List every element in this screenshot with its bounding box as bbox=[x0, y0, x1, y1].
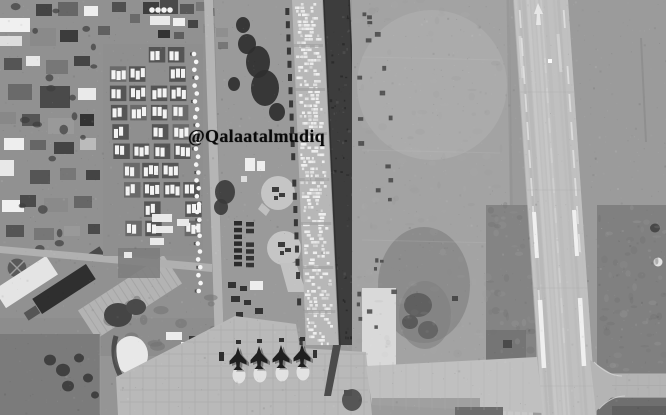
grain bbox=[32, 394, 33, 395]
grain bbox=[466, 381, 467, 382]
grain bbox=[428, 362, 429, 363]
grain bbox=[464, 206, 465, 207]
grain bbox=[654, 27, 656, 29]
grain bbox=[201, 389, 202, 390]
mottle bbox=[426, 330, 429, 333]
grain bbox=[361, 142, 362, 143]
grain bbox=[632, 177, 633, 178]
crate bbox=[307, 105, 310, 108]
grain bbox=[69, 385, 70, 386]
grain bbox=[199, 242, 200, 243]
grain bbox=[273, 292, 274, 293]
tent bbox=[136, 90, 140, 99]
grain bbox=[627, 3, 628, 4]
crate bbox=[307, 297, 309, 300]
grain bbox=[507, 54, 508, 55]
crate bbox=[313, 269, 317, 272]
grain bbox=[91, 121, 93, 123]
grain bbox=[77, 330, 79, 332]
texture bbox=[331, 55, 333, 57]
grain bbox=[437, 147, 439, 149]
crate bbox=[303, 21, 306, 24]
grain bbox=[193, 103, 194, 104]
grain bbox=[278, 344, 279, 345]
grain bbox=[494, 27, 495, 28]
grain bbox=[516, 325, 517, 326]
small-tent bbox=[197, 218, 202, 223]
mottle bbox=[492, 307, 500, 314]
crate bbox=[321, 343, 323, 346]
grain bbox=[420, 195, 421, 196]
grain bbox=[335, 266, 337, 268]
grain bbox=[424, 19, 425, 20]
grain bbox=[206, 35, 208, 37]
grain bbox=[106, 409, 107, 410]
grain bbox=[165, 110, 166, 111]
grain bbox=[55, 73, 56, 74]
crate bbox=[309, 59, 313, 62]
building bbox=[88, 224, 100, 234]
grain bbox=[248, 116, 249, 117]
grain bbox=[119, 113, 121, 115]
vehicle-depot bbox=[214, 0, 306, 345]
grain bbox=[178, 387, 179, 388]
grain bbox=[3, 130, 4, 131]
crate bbox=[305, 98, 309, 101]
grain bbox=[589, 144, 590, 145]
grain bbox=[382, 397, 383, 398]
grain bbox=[263, 109, 264, 110]
grain bbox=[73, 397, 75, 399]
crate bbox=[322, 339, 325, 342]
mottle bbox=[613, 259, 618, 265]
mottle bbox=[433, 91, 439, 98]
tent bbox=[112, 108, 116, 117]
grain bbox=[244, 237, 245, 238]
grain bbox=[501, 160, 502, 161]
tent bbox=[182, 90, 186, 99]
crate bbox=[301, 3, 304, 6]
grain bbox=[572, 38, 573, 39]
crate bbox=[305, 84, 307, 87]
crate bbox=[315, 175, 319, 178]
grain bbox=[323, 369, 325, 371]
grain bbox=[219, 164, 220, 165]
mottle bbox=[375, 201, 377, 204]
grain bbox=[647, 386, 649, 388]
row-gap bbox=[303, 266, 334, 269]
grain bbox=[179, 95, 180, 96]
grain bbox=[156, 97, 157, 98]
crate bbox=[310, 238, 314, 241]
crate bbox=[300, 147, 304, 150]
grain bbox=[91, 201, 92, 202]
tent bbox=[152, 90, 156, 99]
grain bbox=[597, 267, 598, 268]
grain bbox=[442, 76, 443, 77]
grain bbox=[523, 239, 524, 240]
building bbox=[74, 196, 92, 208]
grain bbox=[604, 327, 605, 328]
grain bbox=[69, 41, 70, 42]
grain bbox=[133, 360, 134, 361]
truck bbox=[240, 286, 247, 291]
tree-cluster bbox=[236, 17, 250, 33]
grain bbox=[3, 13, 4, 14]
grain bbox=[617, 263, 618, 264]
building bbox=[36, 4, 52, 16]
truck bbox=[244, 300, 251, 305]
grain bbox=[580, 305, 581, 306]
grain bbox=[181, 301, 183, 303]
grain bbox=[352, 251, 353, 252]
grain bbox=[38, 130, 39, 131]
tent bbox=[157, 88, 161, 97]
grain bbox=[437, 115, 438, 116]
grain bbox=[43, 234, 44, 235]
crate bbox=[304, 52, 307, 55]
grain bbox=[134, 410, 135, 411]
grain bbox=[210, 304, 211, 305]
grain bbox=[19, 301, 20, 302]
grain bbox=[432, 127, 433, 128]
grain bbox=[463, 110, 464, 111]
crate bbox=[311, 192, 315, 195]
grain bbox=[317, 176, 318, 177]
grain bbox=[20, 278, 21, 279]
grain bbox=[224, 86, 225, 87]
grain bbox=[322, 153, 323, 154]
grain bbox=[323, 413, 324, 414]
crate bbox=[304, 122, 307, 125]
grain bbox=[141, 186, 142, 187]
parked-vehicle bbox=[290, 114, 294, 121]
grain bbox=[586, 345, 588, 347]
grain bbox=[87, 358, 89, 360]
mottle bbox=[440, 249, 446, 256]
debris bbox=[380, 260, 384, 263]
grain bbox=[552, 412, 553, 413]
mottle bbox=[361, 84, 364, 91]
grain bbox=[603, 315, 604, 316]
grain bbox=[185, 288, 186, 289]
grain bbox=[129, 323, 131, 325]
grain bbox=[334, 344, 335, 345]
grain bbox=[278, 64, 279, 65]
crate bbox=[320, 217, 324, 220]
grain bbox=[52, 188, 53, 189]
grain bbox=[543, 297, 544, 298]
grain bbox=[645, 362, 646, 363]
grain bbox=[418, 36, 419, 37]
grain bbox=[311, 276, 312, 277]
grain bbox=[8, 34, 10, 36]
grain bbox=[191, 372, 192, 373]
grain bbox=[233, 30, 234, 31]
tent bbox=[137, 109, 141, 118]
grain bbox=[367, 150, 369, 152]
grain bbox=[323, 58, 324, 59]
grain bbox=[367, 365, 368, 366]
grain bbox=[485, 92, 487, 94]
grain bbox=[483, 165, 484, 166]
grain bbox=[500, 107, 501, 108]
grain bbox=[416, 291, 418, 293]
grain bbox=[46, 336, 47, 337]
grain bbox=[649, 256, 651, 258]
crate bbox=[307, 147, 311, 150]
small-tent bbox=[194, 147, 199, 152]
mottle bbox=[407, 136, 414, 139]
grain bbox=[481, 143, 482, 144]
grain bbox=[39, 124, 40, 125]
row-gap bbox=[294, 44, 323, 47]
grain bbox=[544, 298, 545, 299]
grain bbox=[370, 344, 372, 346]
grain bbox=[75, 189, 76, 190]
grain bbox=[274, 60, 275, 61]
tree bbox=[57, 229, 63, 237]
grain bbox=[358, 396, 359, 397]
grain bbox=[574, 387, 575, 388]
crate bbox=[325, 273, 328, 276]
grain bbox=[475, 349, 476, 350]
tent bbox=[163, 88, 167, 97]
building bbox=[130, 14, 140, 23]
crate bbox=[314, 115, 318, 118]
crate bbox=[304, 115, 306, 118]
grain bbox=[640, 30, 641, 31]
mottle bbox=[435, 17, 439, 25]
tree bbox=[48, 156, 56, 162]
grain bbox=[311, 31, 312, 32]
grain bbox=[515, 45, 516, 46]
grain bbox=[253, 414, 254, 415]
grain bbox=[6, 33, 7, 34]
grain bbox=[171, 81, 172, 82]
grain bbox=[167, 296, 168, 297]
grain bbox=[665, 147, 666, 148]
grain bbox=[0, 69, 1, 70]
mottle bbox=[492, 184, 501, 188]
grain bbox=[436, 345, 437, 346]
grain bbox=[392, 136, 393, 137]
crate bbox=[313, 196, 316, 199]
grain bbox=[414, 405, 415, 406]
grain bbox=[441, 98, 442, 99]
grain bbox=[577, 182, 578, 183]
grain bbox=[192, 308, 193, 309]
grain bbox=[82, 1, 84, 3]
grain bbox=[641, 304, 642, 305]
grain bbox=[151, 165, 153, 167]
mottle bbox=[388, 144, 392, 148]
tree bbox=[83, 374, 93, 383]
mottle bbox=[472, 112, 477, 115]
grain bbox=[136, 89, 137, 90]
grain bbox=[331, 172, 332, 173]
grain bbox=[81, 353, 83, 355]
grain bbox=[477, 236, 478, 237]
grain bbox=[73, 379, 74, 380]
building bbox=[34, 228, 54, 240]
grain bbox=[605, 142, 606, 143]
small-tent bbox=[192, 68, 197, 73]
grain bbox=[410, 291, 411, 292]
mottle bbox=[509, 211, 517, 213]
tent bbox=[151, 204, 155, 213]
grain bbox=[287, 337, 288, 338]
grain bbox=[438, 296, 439, 297]
grain bbox=[420, 389, 421, 390]
grain bbox=[359, 333, 360, 334]
grain bbox=[141, 240, 143, 242]
grain bbox=[230, 322, 231, 323]
tree bbox=[32, 28, 38, 34]
tent bbox=[179, 107, 183, 116]
grain bbox=[170, 159, 171, 160]
grain bbox=[414, 367, 416, 369]
grain bbox=[153, 390, 154, 391]
grain bbox=[149, 59, 150, 60]
grain bbox=[462, 70, 463, 71]
tent bbox=[173, 107, 177, 116]
grain bbox=[283, 8, 284, 9]
crate bbox=[306, 28, 310, 31]
grain bbox=[341, 288, 342, 289]
grain bbox=[508, 105, 510, 107]
storage-tank bbox=[161, 7, 167, 13]
grain bbox=[477, 19, 478, 20]
grain bbox=[69, 381, 70, 382]
grain bbox=[637, 170, 638, 171]
grain bbox=[361, 394, 362, 395]
grain bbox=[420, 84, 421, 85]
grain bbox=[186, 358, 187, 359]
grain bbox=[576, 160, 578, 162]
grain bbox=[540, 285, 542, 287]
grain bbox=[353, 319, 354, 320]
grain bbox=[424, 354, 425, 355]
grain bbox=[630, 161, 631, 162]
grain bbox=[471, 35, 473, 37]
grain bbox=[638, 225, 640, 227]
grain bbox=[27, 9, 28, 10]
crate bbox=[316, 245, 318, 248]
grain bbox=[96, 70, 97, 71]
grain bbox=[224, 258, 225, 259]
grain bbox=[131, 234, 132, 235]
grain bbox=[189, 407, 190, 408]
grain bbox=[234, 367, 235, 368]
grain bbox=[318, 77, 319, 78]
building bbox=[30, 140, 46, 150]
grain bbox=[417, 124, 418, 125]
grain bbox=[58, 77, 59, 78]
crate bbox=[318, 234, 322, 237]
grain bbox=[77, 258, 78, 259]
grain bbox=[506, 203, 507, 204]
grain bbox=[37, 262, 38, 263]
tent bbox=[155, 147, 159, 156]
grain bbox=[117, 316, 119, 318]
bright-apron-patch bbox=[362, 288, 396, 368]
grain bbox=[354, 66, 356, 68]
grain bbox=[110, 204, 111, 205]
grain bbox=[352, 381, 353, 382]
grain bbox=[298, 296, 299, 297]
grain bbox=[515, 299, 516, 300]
grain bbox=[648, 400, 649, 401]
grain bbox=[615, 150, 617, 152]
grain bbox=[39, 291, 40, 292]
small-tent bbox=[193, 115, 198, 120]
grain bbox=[438, 330, 439, 331]
crate bbox=[311, 206, 314, 209]
mottle bbox=[360, 215, 368, 222]
grain bbox=[585, 349, 586, 350]
grain bbox=[169, 58, 170, 59]
grain bbox=[94, 283, 95, 284]
grain bbox=[520, 280, 521, 281]
grain bbox=[298, 332, 299, 333]
truck bbox=[234, 241, 242, 246]
crate bbox=[329, 280, 332, 283]
grain bbox=[491, 93, 492, 94]
crate bbox=[312, 161, 316, 164]
grain bbox=[460, 29, 461, 30]
grain bbox=[587, 328, 589, 330]
crate bbox=[321, 210, 323, 213]
grain bbox=[263, 186, 264, 187]
mottle bbox=[400, 164, 403, 166]
scrub bbox=[175, 319, 187, 328]
grain bbox=[114, 154, 116, 156]
grain bbox=[390, 143, 391, 144]
scrub bbox=[153, 306, 168, 314]
grain bbox=[79, 288, 81, 290]
grain bbox=[279, 338, 280, 339]
grain bbox=[556, 130, 557, 131]
debris bbox=[389, 116, 393, 121]
grain bbox=[284, 312, 286, 314]
mottle bbox=[467, 89, 477, 91]
mottle bbox=[601, 256, 608, 264]
grain bbox=[389, 70, 390, 71]
grain bbox=[579, 326, 580, 327]
mottle bbox=[457, 155, 466, 160]
grain bbox=[559, 400, 560, 401]
texture bbox=[344, 107, 346, 109]
crate bbox=[322, 297, 326, 300]
mottle bbox=[374, 300, 383, 302]
grain bbox=[348, 217, 349, 218]
tent bbox=[132, 109, 136, 118]
grain bbox=[638, 389, 639, 390]
grain bbox=[11, 123, 12, 124]
grain bbox=[465, 97, 466, 98]
grain bbox=[51, 194, 52, 195]
tent bbox=[181, 147, 185, 156]
grain bbox=[472, 40, 473, 41]
grain bbox=[309, 12, 310, 13]
grain bbox=[186, 312, 187, 313]
tent bbox=[190, 184, 194, 193]
crate bbox=[296, 56, 299, 59]
crate bbox=[324, 318, 327, 321]
grain bbox=[593, 35, 594, 36]
grain bbox=[630, 276, 631, 277]
